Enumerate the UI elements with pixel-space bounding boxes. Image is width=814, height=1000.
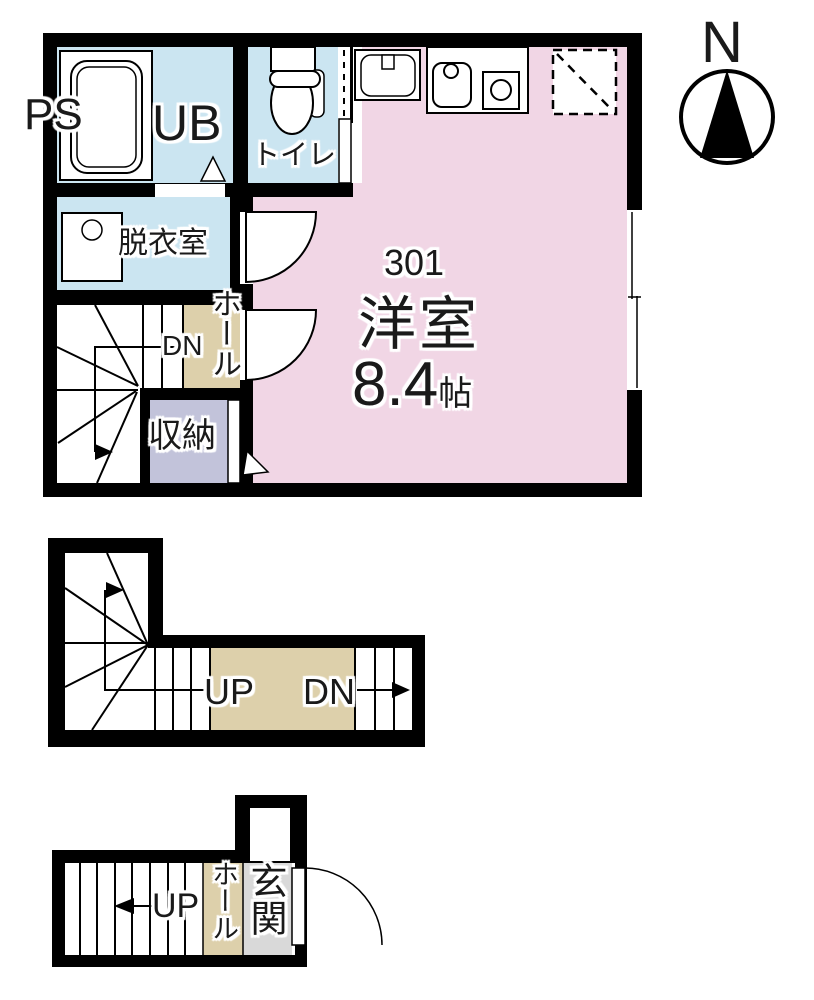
washing-machine-icon: [62, 213, 122, 281]
room-size-unit: 帖: [438, 375, 472, 413]
hall-label-1f: ホール: [209, 860, 236, 941]
room-size: 8.4帖: [352, 354, 472, 416]
porch-alcove: [250, 808, 290, 863]
refrigerator-space-icon: [553, 50, 616, 114]
ub-dressing-opening: [155, 184, 225, 197]
ub-label: UB: [152, 98, 221, 148]
toilet-wall-line: [350, 47, 353, 123]
entrance-label: 玄関: [247, 862, 284, 936]
toilet-label: トイレ: [252, 141, 336, 169]
unit-number: 301: [384, 245, 444, 281]
storage-label: 収納: [148, 419, 216, 453]
washbasin-icon: [355, 50, 420, 100]
dressing-room-label: 脱衣室: [118, 229, 208, 259]
entrance-door-leaf: [292, 868, 305, 945]
sliding-door-leaf: [339, 119, 351, 183]
wall-below-hall: [140, 388, 253, 400]
floorplan-page: PS UB トイレ 脱衣室 DN ホール 収納 301 洋室 8.4帖 UP D…: [0, 0, 814, 1000]
dn-label-2f: DN: [303, 674, 355, 710]
kitchen-counter: [427, 47, 528, 113]
stairs-area: [65, 553, 148, 730]
kitchen-sink-icon: [433, 63, 471, 107]
hall-label-3f: ホール: [208, 288, 238, 378]
room-name: 洋室: [358, 296, 480, 354]
dn-label-3f: DN: [162, 332, 202, 360]
north-label: N: [701, 14, 743, 72]
up-label-2f: UP: [204, 674, 254, 710]
plan-floor2: [48, 538, 425, 747]
compass-north-icon: [681, 70, 773, 163]
storage-door-leaf: [228, 400, 240, 483]
floorplan-drawing: [0, 0, 814, 1000]
plan-floor3: [43, 33, 642, 497]
stove-burner-icon: [483, 72, 519, 109]
wall-ub-toilet: [233, 47, 248, 197]
ps-label: PS: [24, 93, 83, 137]
up-label-1f: UP: [152, 889, 199, 923]
door-swing-arc-icon: [305, 868, 382, 945]
room-size-value: 8.4: [352, 350, 438, 419]
sliding-window-icon: [627, 210, 642, 390]
